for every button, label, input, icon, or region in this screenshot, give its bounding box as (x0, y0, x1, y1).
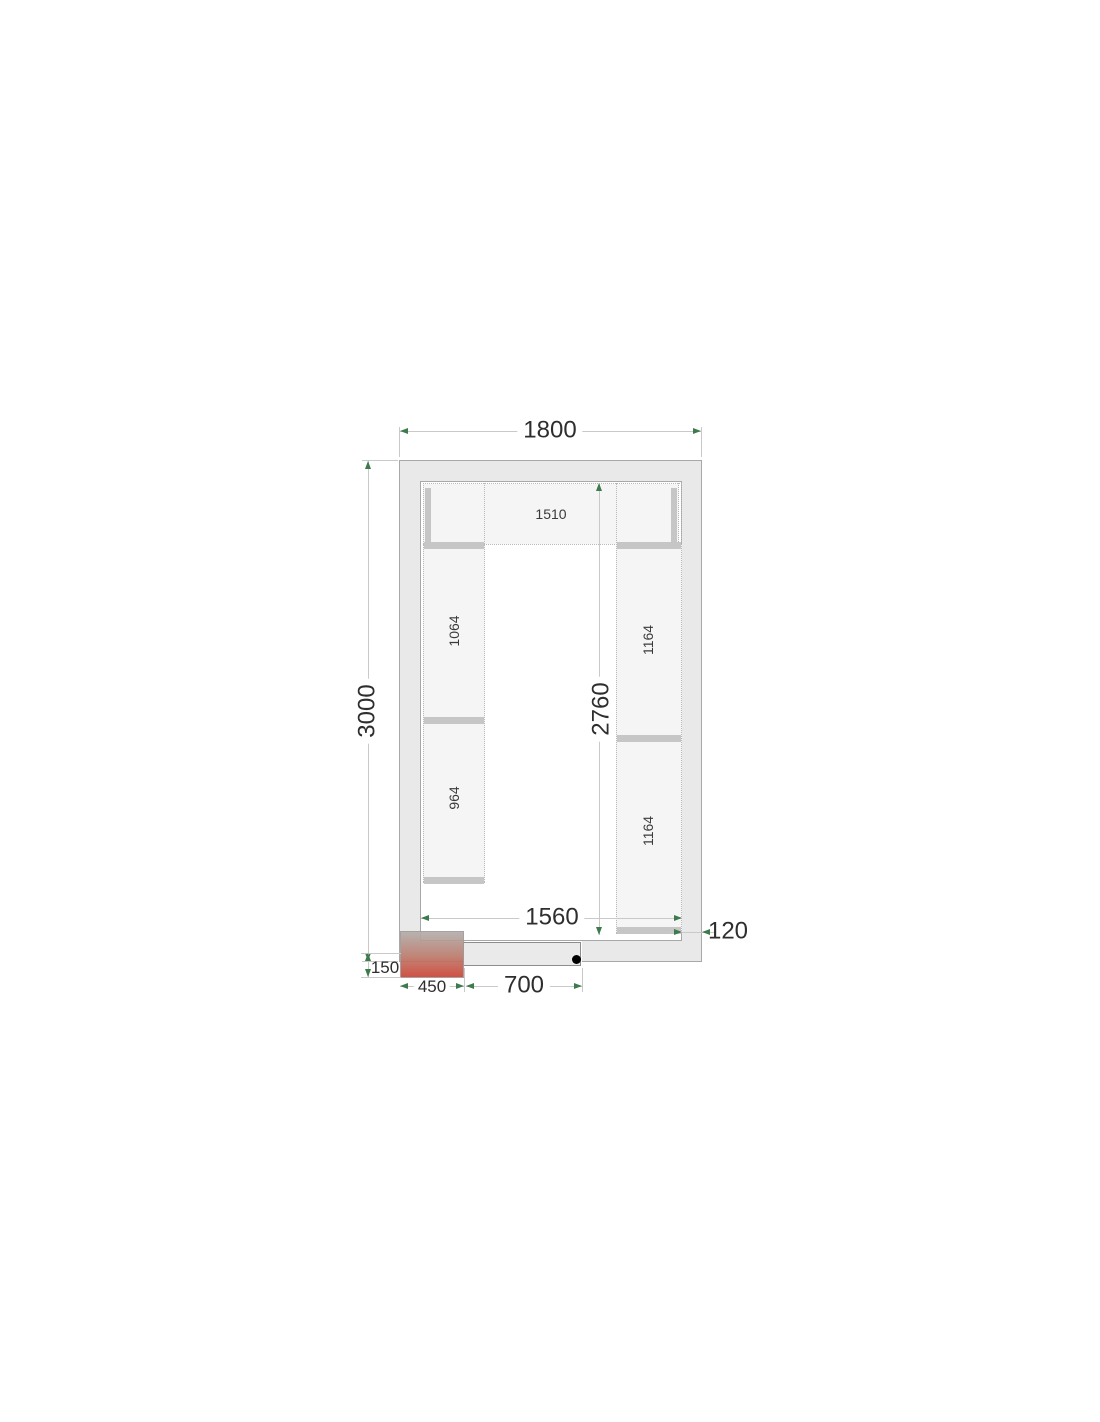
shelf-dotted-line (678, 483, 679, 544)
shelf-dotted-line (616, 483, 617, 933)
shelf-support-bar (424, 717, 484, 724)
shelf-label-right-upper: 1164 (641, 625, 655, 655)
arrowhead (574, 983, 582, 989)
arrowhead (365, 461, 371, 469)
shelf-dotted-line (484, 483, 485, 882)
arrowhead (456, 983, 464, 989)
shelf-support-bar (671, 488, 677, 542)
shelf-support-bar (424, 542, 484, 549)
extension-line (361, 977, 401, 978)
shelf-support-bar (424, 877, 484, 884)
arrowhead (596, 927, 602, 935)
door-hinge-dot (572, 955, 581, 964)
shelf-dotted-line (681, 483, 682, 933)
arrowhead (466, 983, 474, 989)
dim-label-door-width: 700 (498, 972, 550, 997)
door-leaf (463, 942, 581, 966)
dim-label-unit-width: 450 (414, 978, 450, 996)
extension-line (582, 968, 583, 992)
dim-label-inner-width: 1560 (519, 904, 584, 929)
shelf-support-bar (617, 542, 681, 549)
arrowhead (400, 428, 408, 434)
shelf-label-right-lower: 1164 (641, 816, 655, 846)
dim-label-wall-thickness: 120 (702, 918, 754, 943)
cooling-unit (400, 931, 464, 978)
extension-line (464, 968, 465, 992)
dim-label-outer-width: 1800 (517, 417, 582, 442)
arrowhead (693, 428, 701, 434)
dim-label-inner-depth: 2760 (588, 676, 613, 741)
floor-plan: 1510 1064 964 1164 1164 1800 3000 2760 1… (0, 0, 1100, 1422)
shelf-dotted-line (423, 483, 682, 484)
arrowhead (400, 983, 408, 989)
shelf-label-left-upper: 1064 (447, 615, 461, 646)
arrowhead (596, 483, 602, 491)
shelf-label-top: 1510 (535, 507, 566, 521)
shelf-support-bar (425, 488, 431, 542)
shelf-label-left-lower: 964 (447, 786, 461, 809)
arrowhead (421, 915, 429, 921)
arrowhead (674, 915, 682, 921)
dim-label-unit-protrusion: 150 (367, 959, 403, 977)
shelf-support-bar (617, 735, 681, 742)
dim-label-outer-depth: 3000 (354, 678, 379, 743)
shelf-left-column (423, 544, 485, 882)
arrowhead (674, 929, 682, 935)
